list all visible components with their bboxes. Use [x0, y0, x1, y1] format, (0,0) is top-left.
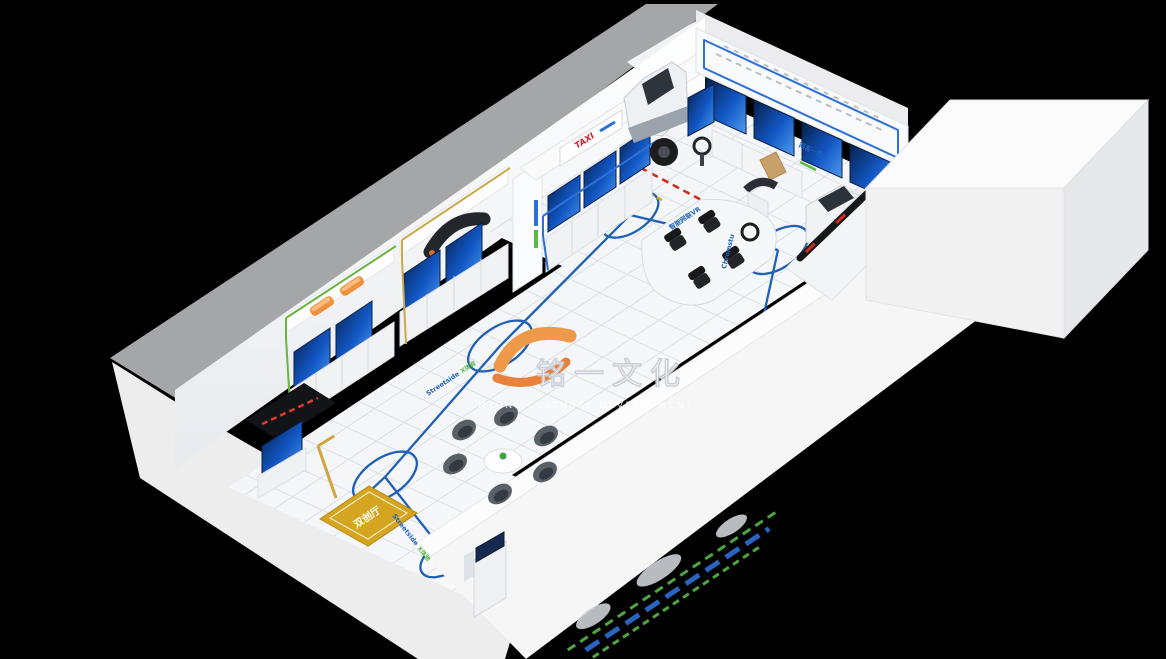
watermark-name: 铭一文化: [536, 357, 688, 392]
watermark-subtitle: MYONE CULTURAL DEVELOPMENT: [478, 401, 694, 411]
truck-wheel-hub: [658, 146, 670, 158]
column-label-strip-blue: [534, 200, 538, 226]
wall-column: [513, 160, 542, 292]
table-plant: [500, 453, 507, 460]
column-label-strip-green: [534, 230, 538, 248]
exhibition-hall-render: 渣土 TAXI 两客一危: [0, 0, 1166, 659]
render-canvas: 渣土 TAXI 两客一危: [0, 0, 1166, 659]
